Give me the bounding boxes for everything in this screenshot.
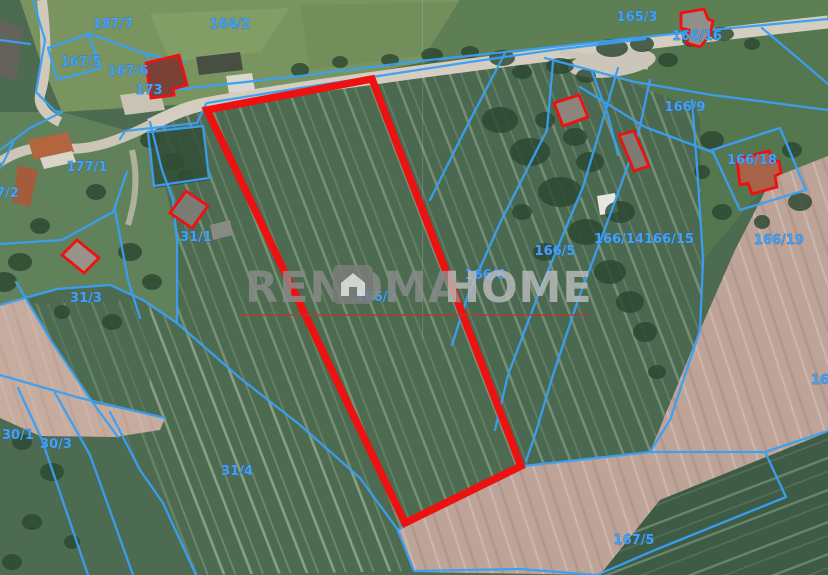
parcel-label-167-5: 167/5 xyxy=(61,55,102,70)
parcel-label-173: 173 xyxy=(135,83,162,98)
parcel-label-166-9: 166/9 xyxy=(665,100,706,115)
parcel-label-30-1: 30/1 xyxy=(2,428,34,443)
cadastral-map: 187/7 164/2 165/3 166/16 167/5 167/6 173… xyxy=(0,0,828,575)
parcel-label-166-5: 166/5 xyxy=(535,244,576,259)
parcel-label-166-16: 166/16 xyxy=(672,29,722,44)
watermark-text-home: HOME xyxy=(444,263,593,313)
parcel-label-31-1: 31/1 xyxy=(180,230,212,245)
parcel-label-16-clipped: 16 xyxy=(811,373,828,388)
parcel-label-166-15: 166/15 xyxy=(644,232,694,247)
parcel-label-167-6: 167/6 xyxy=(108,64,149,79)
parcel-label-7-2: 7/2 xyxy=(0,186,19,201)
parcel-label-30-3: 30/3 xyxy=(40,437,72,452)
parcel-label-166-19: 166/19 xyxy=(754,233,804,248)
watermark: RENOMA HOME xyxy=(240,263,593,315)
parcel-label-187-7: 187/7 xyxy=(93,17,134,32)
parcel-label-31-4: 31/4 xyxy=(221,464,253,479)
parcel-label-177-1: 177/1 xyxy=(67,160,108,175)
map-canvas[interactable]: 187/7 164/2 165/3 166/16 167/5 167/6 173… xyxy=(0,0,828,575)
parcel-label-164-2: 164/2 xyxy=(210,17,251,32)
parcel-label-166-14: 166/14 xyxy=(594,232,644,247)
parcel-label-165-3: 165/3 xyxy=(617,10,658,25)
parcel-label-31-3: 31/3 xyxy=(70,291,102,306)
parcel-label-167-5-bottom: 167/5 xyxy=(614,533,655,548)
parcel-label-166-18: 166/18 xyxy=(727,153,777,168)
